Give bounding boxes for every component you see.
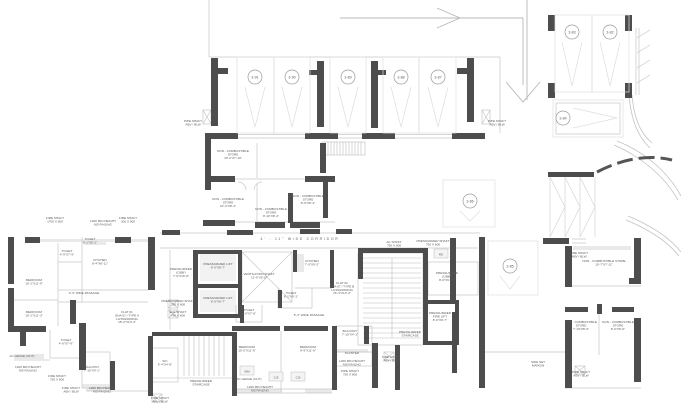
room-label: BALCONY7'-10"X4'-1" <box>342 329 358 336</box>
stall-turning-mark <box>460 211 480 221</box>
stall-turning-mark <box>338 87 358 127</box>
store-label: NON - COMBUSTIBLESTORE10'-3"X8'-4" <box>212 197 244 208</box>
room-label: PRESSURIZEDFIRE LIFT8'-0"X8'-7" <box>429 311 452 322</box>
stall-tag-number: 3-82 <box>606 30 613 34</box>
stall-turning-mark <box>245 87 265 127</box>
stall-tag-number: 3-90 <box>288 75 295 79</box>
parking-stall: 3-89 <box>330 57 366 133</box>
stall-turning-mark <box>428 87 448 127</box>
passage-note: 3'-3" WIDE PASSAGE <box>69 291 100 295</box>
margin-note: SIDE SETMARGIN <box>531 360 545 367</box>
room-label: PLANTER <box>345 351 360 355</box>
stall-tag-number: 3-91 <box>251 75 258 79</box>
parking-stall: 3-91 <box>237 57 274 133</box>
stair-treads <box>184 336 224 376</box>
parking-stall: 3-83 <box>555 15 592 92</box>
ledge-note: AC LEDGE (OUT) <box>9 354 34 358</box>
store-label: NON - COMBUSTIBLESTORE8'-10"X8'-4" <box>255 207 287 218</box>
shaft-note: FIRE SHAFTABV / BLW <box>62 386 80 393</box>
shaft-note: FIRE SHAFTABV / BLW <box>151 396 169 403</box>
flat-title: FLAT 01GHA 07 / TYPE ALIVING/DINING18'-0… <box>115 310 140 324</box>
store-label: NON - COMBUSTIBLE STORE10'-7"X7'-11" <box>582 259 625 266</box>
fixture-code: WM <box>240 366 254 375</box>
fixture-code: C.B <box>269 372 283 381</box>
stall-turning-mark <box>600 42 620 86</box>
room-label: TOILET4'-9"X7'-6" <box>242 308 256 315</box>
railing-note: 1200 MIN HEIGHTMS RAILING <box>15 365 41 372</box>
room-label: PRESSURIZEDSTAIRCASE <box>190 379 213 386</box>
parking-stall: 3-90 <box>274 57 310 133</box>
fixture-code: C.B <box>291 372 305 381</box>
svg-text:C.B: C.B <box>296 375 301 379</box>
room-label: TOILET4'-9"X7'-9" <box>59 338 73 345</box>
shaft-note: AC SHAFT750 X 600 <box>386 240 401 247</box>
shaft-note: FIRE SHAFT1700 X 600 <box>46 216 64 223</box>
room-label: BEDROOM10'-2"X11'-3" <box>25 310 43 317</box>
ledge-note: AC LEDGE (OUT) <box>236 377 261 381</box>
shaft-note: FIRE SHAFT200 X 600 <box>119 216 137 223</box>
stall-tag-number: 3-87 <box>434 75 441 79</box>
shaft-note: PRESSURIZED SHAFT750 X 600 <box>161 299 194 306</box>
shaft-note: FIRE SHAFTABV / BLW <box>570 251 588 258</box>
shaft-note: PRESSURIZED SHAFT750 X 600 <box>416 239 449 246</box>
shaft-note: PIPE SHAFTABV / BLW <box>572 370 590 377</box>
room-label: TOILET8'-1"X5'-1" <box>83 237 97 244</box>
stall-tag-number: 3-88 <box>397 75 404 79</box>
parking-stall: 3-82 <box>592 15 629 92</box>
floor-plan-canvas: 3-913-903-893-883-873-833-823-843-863-85… <box>0 0 681 406</box>
shaft-note: ELE SHAFT750 X 600 <box>170 310 187 317</box>
railing-note: 1200 MIN HEIGHTMS RAILING <box>89 386 115 393</box>
svg-text:WM: WM <box>244 369 250 373</box>
stall-tag-number: 3-86 <box>466 199 473 203</box>
svg-text:C.B: C.B <box>274 375 279 379</box>
drive-aisle-arrows <box>340 0 540 102</box>
stall-turning-mark <box>500 276 520 289</box>
room-label: VENTILATION SHAFT12'-0"X5'-0" <box>243 272 274 279</box>
stall-tag-number: 3-89 <box>344 75 351 79</box>
shaft-note: FIRE SHAFTABV / BLW <box>382 355 400 362</box>
room-label: TOILET4'-9"X7'-9" <box>60 249 74 256</box>
ramp-chevrons <box>550 177 595 237</box>
svg-text:RD: RD <box>439 252 443 256</box>
stall-turning-mark <box>562 42 582 86</box>
floor-plan-sheet: 3-913-903-893-883-873-833-823-843-863-85… <box>0 0 681 406</box>
room-label: PRESSURIZEDLOBBY7'-0"X19'-8" <box>170 267 193 278</box>
room-label: WC5'-4"X4'-9" <box>158 359 172 366</box>
pipe-shaft-note: PIPE SHAFTABV / BLW <box>488 119 506 126</box>
pipe-shaft-note: PIPE SHAFTABV / BLW <box>184 119 202 126</box>
stall-turning-mark <box>391 87 411 127</box>
room-label: TOILET8'-1"X5'-1" <box>284 291 298 298</box>
stall-tag-number: 3-83 <box>568 30 575 34</box>
store-label: NON - COMBUSTIBLESTORE10'-2"X7'-10" <box>217 149 249 160</box>
parking-stall: 3-87 <box>419 57 456 133</box>
room-label: BEDROOM9'-9"X11'-6" <box>300 345 316 352</box>
railing-note: 1200 MIN HEIGHTMS RAILING <box>90 219 116 226</box>
shaft-note: PIPE SHAFT750 X 600 <box>341 369 359 376</box>
passage-note: 5'-3" WIDE PASSAGE <box>294 313 325 317</box>
corridor-note: 4' - 11" WIDE CORRIDOR <box>260 237 339 241</box>
railing-note: 1200 MIN HEIGHTMS RAILING <box>339 359 365 366</box>
stall-tag-number: 3-85 <box>506 264 513 268</box>
room-label: PRESSURIZEDSTAIRCASE <box>399 330 422 337</box>
store-label: NON - COMBUSTIBLESTORE8'-0"X8'-0" <box>602 320 634 331</box>
room-label: BEDROOM10'-0"X11'-6" <box>238 345 256 352</box>
room-label: BALCONY7'-10"X4'-1" <box>84 365 100 372</box>
store-label: NON - COMBUSTIBLESTORE8'-9"X8'-4" <box>292 194 324 205</box>
stall-turning-mark <box>282 87 302 127</box>
parking-stall: 3-86 <box>443 180 495 227</box>
walls-layer <box>8 15 641 396</box>
stall-tag-number: 3-84 <box>559 116 566 120</box>
parking-stall: 3-85 <box>488 241 538 295</box>
parking-stall: 3-84 <box>553 100 623 137</box>
stall-turning-mark <box>573 108 617 128</box>
room-label: KITCHEN7'-9"X9'-2" <box>305 259 319 266</box>
room-label: BEDROOM10'-2"X11'-9" <box>25 278 43 285</box>
room-label: KITCHEN8'-4"X8'-11" <box>92 258 108 265</box>
shaft-note: FIRE SHAFT750 X 600 <box>48 374 66 381</box>
parking-stall: 3-88 <box>383 57 419 133</box>
fixture-code: RD <box>434 249 448 258</box>
